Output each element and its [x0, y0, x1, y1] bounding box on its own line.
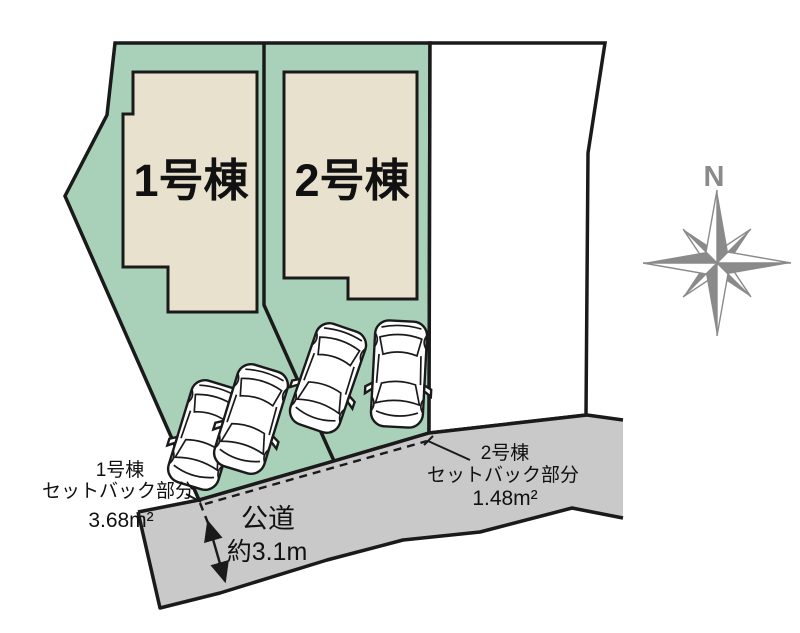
compass-north-label: N: [704, 161, 725, 193]
building-2-label: 2号棟: [294, 155, 410, 206]
site-plan-page: 1号棟 2号棟 1号棟 セットバック部分 3.68m² 2号棟 セットバック部分…: [0, 0, 800, 633]
setback2-line3: 1.48m²: [472, 487, 537, 510]
site-plan-canvas: 1号棟 2号棟 1号棟 セットバック部分 3.68m² 2号棟 セットバック部分…: [0, 0, 800, 633]
setback1-line2: セットバック部分: [42, 480, 194, 502]
setback2-line1: 2号棟: [481, 442, 530, 464]
road-width-label: 約3.1m: [227, 538, 308, 566]
setback2-line2: セットバック部分: [427, 464, 579, 486]
setback1-line1: 1号棟: [96, 459, 145, 481]
building-1-label: 1号棟: [133, 155, 249, 206]
setback1-line3: 3.68m²: [88, 509, 153, 532]
compass-rose-icon: [643, 190, 791, 336]
neighbor-lot: [429, 43, 605, 433]
road-name-label: 公道: [241, 504, 295, 534]
car: [363, 319, 434, 428]
